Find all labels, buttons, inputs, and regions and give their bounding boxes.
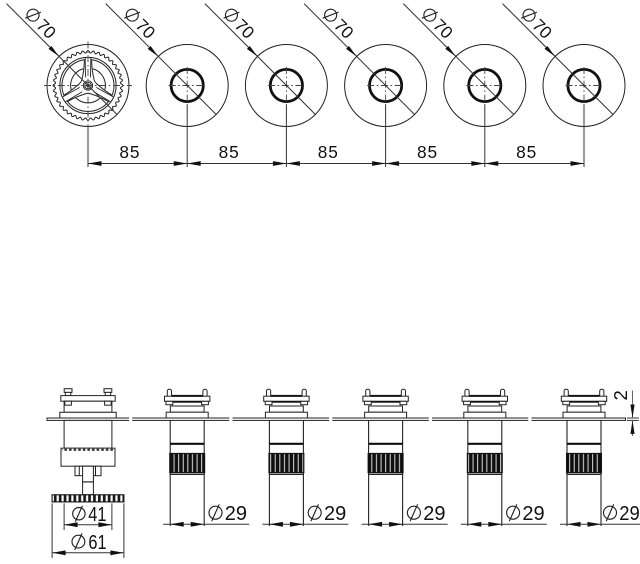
svg-text:29: 29 xyxy=(522,503,544,525)
svg-text:61: 61 xyxy=(88,532,106,554)
svg-text:29: 29 xyxy=(423,503,445,525)
svg-text:85: 85 xyxy=(119,142,140,162)
svg-text:85: 85 xyxy=(318,142,339,162)
svg-text:2: 2 xyxy=(610,390,631,400)
svg-text:85: 85 xyxy=(417,142,438,162)
svg-text:85: 85 xyxy=(516,142,537,162)
svg-text:41: 41 xyxy=(88,504,106,526)
svg-text:29: 29 xyxy=(324,503,346,525)
svg-text:29: 29 xyxy=(619,503,640,525)
svg-text:29: 29 xyxy=(225,503,247,525)
svg-text:85: 85 xyxy=(219,142,240,162)
